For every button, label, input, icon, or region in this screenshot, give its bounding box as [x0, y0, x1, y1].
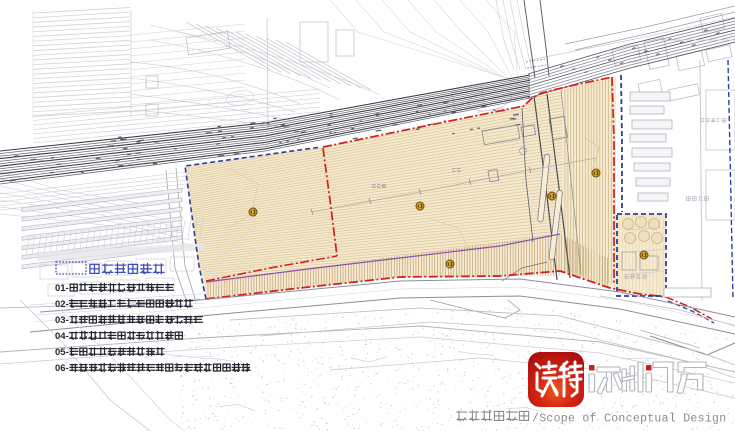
svg-text:05-: 05- [55, 347, 69, 358]
svg-text:01-: 01- [55, 283, 69, 294]
svg-text:02-: 02- [55, 299, 69, 310]
svg-text:03-: 03- [55, 315, 69, 326]
svg-text:/Scope of Conceptual Design: /Scope of Conceptual Design [532, 413, 726, 426]
svg-text:04-: 04- [55, 331, 69, 342]
svg-text:06-: 06- [55, 363, 69, 374]
